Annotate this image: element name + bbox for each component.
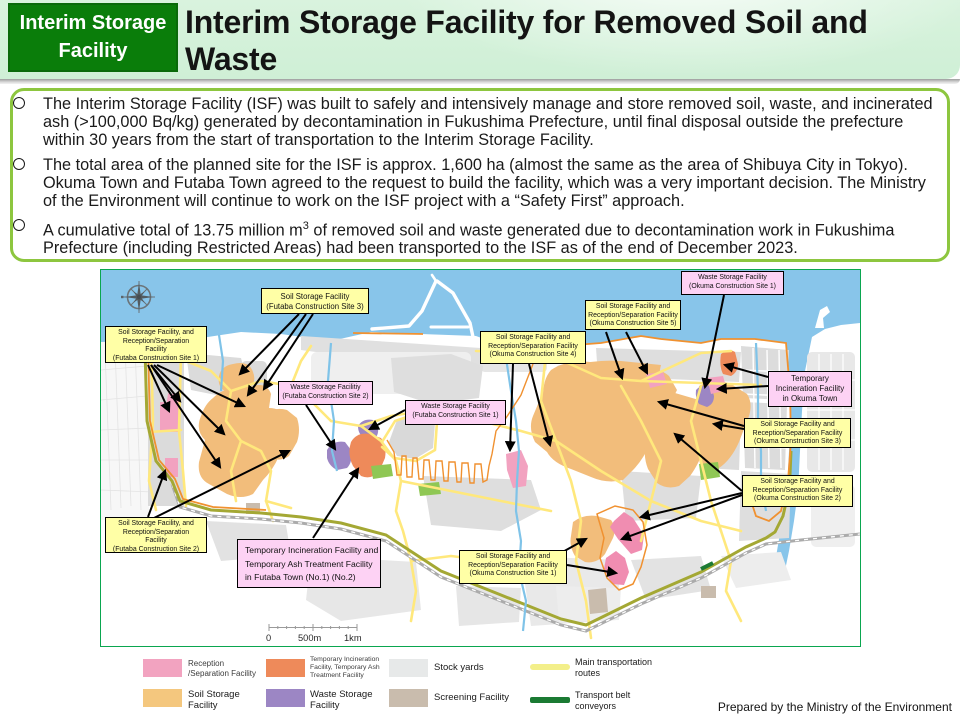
svg-text:500m: 500m [298, 633, 322, 643]
svg-text:1km: 1km [344, 633, 362, 643]
svg-text:0: 0 [266, 633, 271, 643]
